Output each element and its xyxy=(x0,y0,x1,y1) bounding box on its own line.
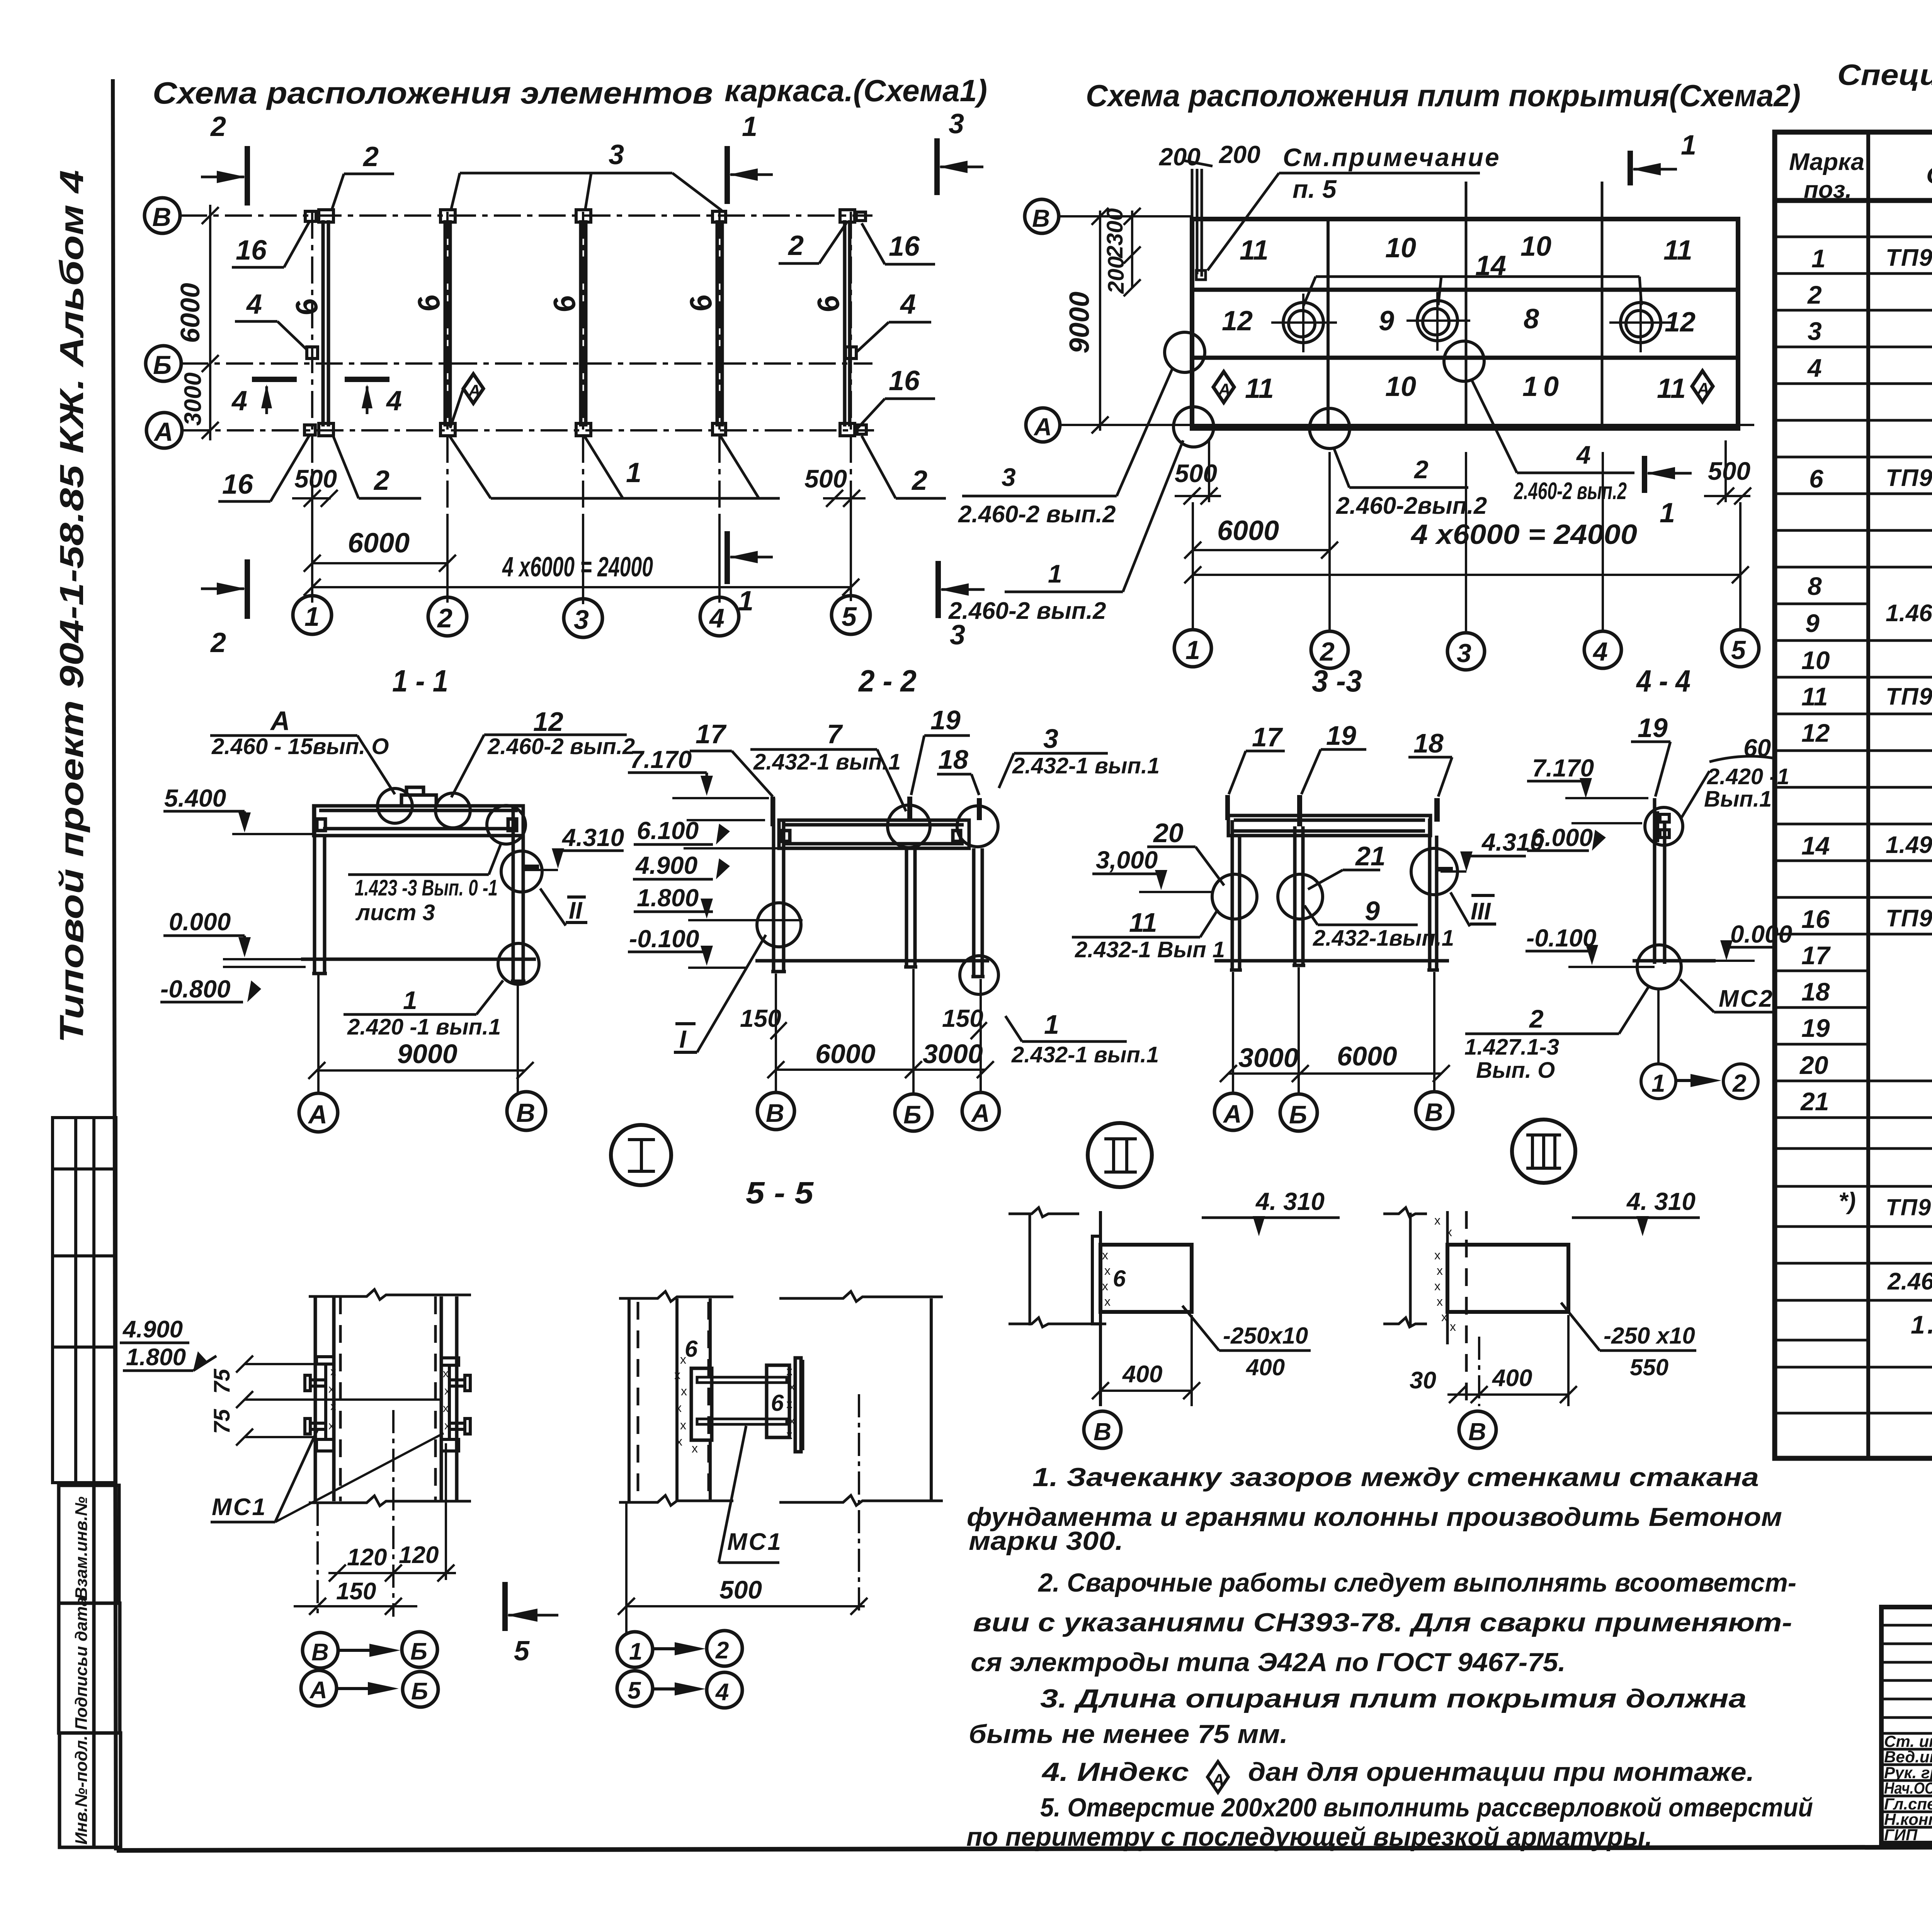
svg-text:1. 400 - 7: 1. 400 - 7 xyxy=(1911,1310,1932,1339)
svg-text:4 - 4: 4 - 4 xyxy=(1636,664,1690,698)
svg-text:0.000: 0.000 xyxy=(169,908,231,936)
svg-text:19: 19 xyxy=(1638,713,1668,743)
svg-text:Спецификация к схеме располож: Спецификация к схеме расположения элемен… xyxy=(1837,59,1932,92)
svg-text:1: 1 xyxy=(1048,559,1062,588)
svg-text:150: 150 xyxy=(336,1578,376,1605)
svg-text:2: 2 xyxy=(787,230,804,261)
svg-text:4. Индекс: 4. Индекс xyxy=(1041,1757,1189,1787)
svg-text:3000: 3000 xyxy=(1238,1043,1299,1073)
svg-text:200: 200 xyxy=(1219,141,1260,168)
svg-text:-250х10: -250х10 xyxy=(1223,1323,1308,1349)
svg-text:200: 200 xyxy=(1159,143,1201,171)
svg-text:-0.100: -0.100 xyxy=(629,925,699,953)
svg-text:I: I xyxy=(679,1025,687,1053)
svg-text:А: А xyxy=(1212,1770,1225,1789)
svg-text:18: 18 xyxy=(1413,728,1444,758)
svg-text:ТП904-1- -КЖИ-200: ТП904-1- -КЖИ-200 xyxy=(1886,245,1932,271)
svg-text:х: х xyxy=(1434,1213,1440,1227)
svg-text:2: 2 xyxy=(210,111,226,142)
svg-text:2: 2 xyxy=(1529,1004,1544,1033)
svg-text:4. 310: 4. 310 xyxy=(1626,1188,1696,1215)
svg-text:А: А xyxy=(1697,379,1709,398)
svg-text:А: А xyxy=(1033,413,1052,441)
svg-text:400: 400 xyxy=(1246,1354,1285,1380)
svg-text:17: 17 xyxy=(1801,941,1831,970)
svg-text:75: 75 xyxy=(209,1409,235,1434)
svg-text:А: А xyxy=(309,1677,327,1704)
svg-text:См.примечание: См.примечание xyxy=(1283,143,1501,172)
svg-text:5: 5 xyxy=(628,1677,641,1704)
svg-text:лист 3: лист 3 xyxy=(355,900,435,925)
svg-text:Вед.инж.: Вед.инж. xyxy=(1884,1748,1932,1766)
svg-text:1.423 -3 Вып. 0 -1: 1.423 -3 Вып. 0 -1 xyxy=(355,875,498,900)
svg-text:2: 2 xyxy=(210,627,226,658)
svg-text:3000: 3000 xyxy=(923,1039,983,1069)
svg-text:2. Сварочные работы следует: 2. Сварочные работы следует выполнять вс… xyxy=(1037,1568,1796,1597)
svg-text:ГИП: ГИП xyxy=(1884,1826,1918,1844)
svg-text:10: 10 xyxy=(1385,233,1416,263)
svg-text:х: х xyxy=(443,1367,449,1380)
svg-text:20: 20 xyxy=(1799,1051,1828,1079)
svg-text:9: 9 xyxy=(1379,306,1394,336)
svg-text:2.460-2вып.2: 2.460-2вып.2 xyxy=(1336,493,1487,519)
svg-text:Взам.инв.№: Взам.инв.№ xyxy=(72,1497,91,1599)
svg-text:5: 5 xyxy=(842,601,857,632)
svg-text:-250 х10: -250 х10 xyxy=(1604,1323,1695,1349)
svg-text:3000: 3000 xyxy=(180,372,206,426)
svg-text:каркаса.(Схема1): каркаса.(Схема1) xyxy=(724,73,987,108)
svg-text:4 х6000 = 24000: 4 х6000 = 24000 xyxy=(502,552,653,583)
svg-text:х: х xyxy=(1434,1248,1440,1262)
svg-text:-0.800: -0.800 xyxy=(160,975,230,1003)
svg-text:75: 75 xyxy=(209,1369,235,1394)
svg-text:В: В xyxy=(766,1099,784,1127)
svg-text:2.420 -1: 2.420 -1 xyxy=(1707,764,1789,789)
svg-text:500: 500 xyxy=(804,464,847,493)
svg-text:5: 5 xyxy=(1731,635,1746,665)
svg-text:3: 3 xyxy=(574,605,589,635)
svg-text:Б: Б xyxy=(1289,1100,1307,1129)
svg-text:550: 550 xyxy=(1630,1354,1668,1380)
svg-text:А: А xyxy=(270,706,290,736)
svg-text:21: 21 xyxy=(1800,1087,1829,1116)
svg-text:6: 6 xyxy=(685,1336,698,1362)
svg-text:х: х xyxy=(1450,1320,1456,1334)
svg-text:9: 9 xyxy=(1365,896,1380,926)
svg-text:ТП904-1- -КЖИ-МС2: ТП904-1- -КЖИ-МС2 xyxy=(1886,1194,1932,1220)
svg-text:1.427.1-3: 1.427.1-3 xyxy=(1464,1035,1559,1060)
svg-text:1: 1 xyxy=(742,111,757,142)
svg-text:2300: 2300 xyxy=(1102,208,1128,258)
svg-text:6: 6 xyxy=(771,1390,784,1416)
svg-text:11: 11 xyxy=(1657,373,1686,404)
svg-text:16: 16 xyxy=(1801,905,1830,933)
svg-text:2: 2 xyxy=(373,465,389,496)
svg-text:17: 17 xyxy=(696,719,727,749)
svg-text:19: 19 xyxy=(1801,1014,1830,1042)
svg-text:2.460-2 вып.2: 2.460-2 вып.2 xyxy=(1514,478,1627,505)
svg-text:МС2: МС2 xyxy=(1719,985,1774,1012)
svg-text:2 - 2: 2 - 2 xyxy=(858,664,917,698)
svg-text:3: 3 xyxy=(1808,317,1822,345)
svg-text:4: 4 xyxy=(386,386,402,416)
svg-text:4.900: 4.900 xyxy=(635,851,697,879)
svg-text:500: 500 xyxy=(1708,457,1750,485)
svg-text:х: х xyxy=(786,1397,793,1411)
svg-text:2: 2 xyxy=(1413,455,1429,484)
svg-text:х: х xyxy=(328,1383,334,1395)
svg-text:120: 120 xyxy=(347,1544,387,1571)
svg-text:2: 2 xyxy=(1732,1069,1747,1097)
svg-text:А: А xyxy=(308,1100,327,1129)
svg-text:х: х xyxy=(1102,1248,1108,1262)
svg-text:В: В xyxy=(516,1098,535,1128)
svg-text:ТП904-1- -КЖИ -100: ТП904-1- -КЖИ -100 xyxy=(1886,465,1932,491)
svg-text:1: 1 xyxy=(1185,635,1200,665)
svg-text:4: 4 xyxy=(231,386,247,416)
svg-text:2.460-2 вып.2: 2.460-2 вып.2 xyxy=(958,501,1116,528)
svg-text:16: 16 xyxy=(889,231,920,262)
svg-text:А: А xyxy=(971,1099,990,1127)
svg-text:3: 3 xyxy=(609,139,624,170)
svg-text:х: х xyxy=(674,1368,680,1382)
svg-text:4: 4 xyxy=(709,603,724,633)
svg-text:МС1: МС1 xyxy=(212,1494,267,1521)
svg-text:12: 12 xyxy=(1222,306,1253,336)
svg-text:2.460-2 вып.2: 2.460-2 вып.2 xyxy=(948,598,1106,624)
svg-text:6000: 6000 xyxy=(175,283,205,343)
svg-text:х: х xyxy=(1441,1310,1447,1324)
svg-text:3: 3 xyxy=(949,109,964,139)
svg-text:7.170: 7.170 xyxy=(630,746,692,773)
svg-text:30: 30 xyxy=(1410,1367,1436,1394)
svg-text:17: 17 xyxy=(1252,722,1283,752)
svg-text:А: А xyxy=(1223,1099,1242,1128)
svg-text:4: 4 xyxy=(246,289,262,320)
svg-text:III: III xyxy=(1471,898,1491,925)
svg-text:19: 19 xyxy=(1326,720,1356,751)
svg-text:3: 3 xyxy=(1043,724,1058,754)
svg-text:12: 12 xyxy=(1801,719,1830,747)
svg-text:Вып. О: Вып. О xyxy=(1476,1058,1555,1083)
svg-text:МС1: МС1 xyxy=(727,1529,782,1555)
svg-text:1.465.1- 10/82 вып.1: 1.465.1- 10/82 вып.1 xyxy=(1886,600,1932,627)
svg-text:1: 1 xyxy=(1811,244,1826,273)
svg-text:3: 3 xyxy=(1457,639,1471,668)
svg-text:п. 5: п. 5 xyxy=(1293,175,1337,203)
svg-text:по периметру с последующей: по периметру с последующей вырезкой арма… xyxy=(966,1822,1652,1852)
svg-text:16: 16 xyxy=(222,469,253,500)
svg-text:9000: 9000 xyxy=(1064,292,1095,353)
svg-text:Б: Б xyxy=(411,1678,428,1705)
svg-text:7.170: 7.170 xyxy=(1532,754,1594,782)
svg-text:2: 2 xyxy=(715,1637,729,1664)
svg-text:8: 8 xyxy=(1808,572,1822,600)
svg-text:х: х xyxy=(786,1364,793,1378)
svg-text:11: 11 xyxy=(1801,682,1828,711)
svg-text:х: х xyxy=(786,1428,793,1442)
svg-text:быть не менее 75 мм.: быть не менее 75 мм. xyxy=(969,1719,1288,1749)
svg-text:6000: 6000 xyxy=(1337,1041,1397,1071)
svg-text:6: 6 xyxy=(1809,464,1824,493)
svg-text:21: 21 xyxy=(1355,841,1386,871)
svg-text:х: х xyxy=(1434,1279,1440,1293)
svg-text:3: 3 xyxy=(950,620,965,651)
svg-text:х: х xyxy=(444,1419,450,1432)
svg-text:9000: 9000 xyxy=(397,1039,457,1069)
svg-text:4: 4 xyxy=(1576,440,1591,469)
svg-text:12: 12 xyxy=(533,707,563,737)
svg-text:500: 500 xyxy=(1175,459,1217,488)
svg-text:10: 10 xyxy=(1801,646,1830,674)
svg-text:2: 2 xyxy=(911,465,927,496)
svg-text:х: х xyxy=(1102,1279,1108,1293)
svg-text:3,000: 3,000 xyxy=(1096,846,1158,874)
svg-text:4.310: 4.310 xyxy=(561,824,624,851)
svg-text:120: 120 xyxy=(399,1542,439,1568)
svg-text:2: 2 xyxy=(437,603,452,633)
svg-text:20: 20 xyxy=(1153,818,1184,848)
svg-text:*): *) xyxy=(1838,1188,1856,1215)
svg-text:10: 10 xyxy=(1385,371,1416,402)
svg-text:2.432-1 вып.1: 2.432-1 вып.1 xyxy=(1011,1042,1159,1067)
svg-text:В: В xyxy=(152,202,171,232)
svg-text:Б: Б xyxy=(153,350,172,380)
svg-text:18: 18 xyxy=(1801,977,1830,1006)
svg-text:1: 1 xyxy=(626,457,641,488)
svg-text:3: 3 xyxy=(1002,463,1016,491)
svg-text:6: 6 xyxy=(1113,1266,1126,1291)
svg-text:2: 2 xyxy=(1319,637,1335,666)
svg-text:3. Длина опирания плит по: 3. Длина опирания плит покрытия должна xyxy=(1040,1684,1747,1713)
svg-text:Вып.1: Вып.1 xyxy=(1704,787,1772,812)
svg-text:х: х xyxy=(676,1434,682,1448)
svg-text:2.432-1 вып.1: 2.432-1 вып.1 xyxy=(1012,753,1160,778)
svg-text:3 -3: 3 -3 xyxy=(1312,664,1362,698)
svg-text:В: В xyxy=(1468,1418,1486,1446)
svg-text:2.432-1вып.1: 2.432-1вып.1 xyxy=(1313,926,1454,951)
svg-text:Б: Б xyxy=(410,1638,427,1665)
svg-text:16: 16 xyxy=(889,365,920,396)
svg-text:9: 9 xyxy=(1805,609,1820,637)
svg-text:Инв.№-подл.: Инв.№-подл. xyxy=(72,1735,91,1845)
svg-text:вии с указаниями СН393-78.: вии с указаниями СН393-78. Для сварки пр… xyxy=(973,1608,1792,1637)
svg-text:А: А xyxy=(153,417,173,447)
svg-text:10: 10 xyxy=(1520,231,1551,262)
svg-text:х: х xyxy=(328,1419,334,1432)
svg-text:16: 16 xyxy=(236,235,267,266)
svg-text:В: В xyxy=(1425,1098,1443,1126)
svg-text:1: 1 xyxy=(403,986,417,1014)
svg-text:2.460 - 15вып. О: 2.460 - 15вып. О xyxy=(211,734,389,759)
svg-text:2.460-2 вып.2: 2.460-2 вып.2 xyxy=(487,734,635,759)
svg-text:4.900: 4.900 xyxy=(122,1316,183,1343)
svg-text:1.800: 1.800 xyxy=(126,1344,186,1371)
svg-text:4: 4 xyxy=(1592,637,1608,666)
svg-text:х: х xyxy=(680,1418,686,1432)
svg-text:х: х xyxy=(789,1380,795,1393)
svg-text:1: 1 xyxy=(304,601,320,632)
svg-text:18: 18 xyxy=(938,744,968,775)
svg-text:6000: 6000 xyxy=(348,528,410,559)
svg-text:5 - 5: 5 - 5 xyxy=(746,1176,814,1210)
svg-text:6.000: 6.000 xyxy=(1531,824,1593,851)
svg-text:4: 4 xyxy=(715,1679,729,1706)
svg-text:В: В xyxy=(1032,204,1050,232)
svg-text:А: А xyxy=(1218,380,1231,399)
svg-text:11: 11 xyxy=(1663,235,1692,266)
svg-text:14: 14 xyxy=(1801,831,1830,860)
svg-text:ТП904-1- -КЖИ- 300: ТП904-1- -КЖИ- 300 xyxy=(1886,683,1932,710)
svg-text:2.420 -1 вып.1: 2.420 -1 вып.1 xyxy=(347,1014,501,1040)
svg-text:х: х xyxy=(1104,1295,1111,1308)
svg-text:1.800: 1.800 xyxy=(637,884,699,912)
svg-text:х: х xyxy=(1437,1264,1443,1278)
svg-text:400: 400 xyxy=(1492,1365,1532,1391)
svg-text:5: 5 xyxy=(514,1636,530,1667)
svg-text:19: 19 xyxy=(930,705,961,735)
svg-text:В: В xyxy=(1094,1418,1111,1446)
svg-text:1 - 1: 1 - 1 xyxy=(392,664,448,698)
svg-text:4: 4 xyxy=(900,289,916,320)
svg-text:Схема расположения элементов: Схема расположения элементов xyxy=(153,76,713,110)
svg-text:10: 10 xyxy=(1522,371,1564,402)
svg-text:1: 1 xyxy=(1044,1009,1059,1040)
svg-text:1: 1 xyxy=(1681,130,1696,161)
svg-text:1: 1 xyxy=(1651,1069,1665,1097)
svg-text:1: 1 xyxy=(1660,498,1675,528)
svg-text:400: 400 xyxy=(1122,1361,1162,1388)
svg-text:х: х xyxy=(443,1402,449,1415)
svg-text:дан для ориентации при мон: дан для ориентации при монтаже. xyxy=(1248,1757,1754,1787)
svg-text:Типовой проект 904-1-58.85 КЖ.: Типовой проект 904-1-58.85 КЖ. Альбом 4 xyxy=(53,170,90,1043)
svg-text:2: 2 xyxy=(362,141,379,172)
svg-text:х: х xyxy=(789,1414,795,1427)
svg-text:500: 500 xyxy=(294,464,337,493)
svg-text:х: х xyxy=(330,1400,336,1413)
svg-text:Б: Б xyxy=(903,1100,922,1129)
svg-text:4. 310: 4. 310 xyxy=(1255,1188,1325,1215)
svg-text:х: х xyxy=(675,1401,682,1415)
svg-text:х: х xyxy=(444,1385,450,1397)
svg-text:х: х xyxy=(1446,1225,1452,1239)
svg-text:8: 8 xyxy=(1524,304,1539,335)
svg-text:2.460-15 вып. 0: 2.460-15 вып. 0 xyxy=(1887,1268,1932,1295)
svg-text:11: 11 xyxy=(1240,235,1269,266)
svg-text:2.432-1 Вып 1: 2.432-1 Вып 1 xyxy=(1075,937,1225,962)
svg-text:Марка: Марка xyxy=(1789,149,1864,175)
svg-text:1. Зачеканку зазоров между: 1. Зачеканку зазоров между стенками стак… xyxy=(1032,1463,1759,1492)
svg-text:-0.100: -0.100 xyxy=(1526,924,1596,952)
svg-text:2: 2 xyxy=(1807,280,1822,309)
svg-text:5.400: 5.400 xyxy=(164,784,226,812)
svg-text:7: 7 xyxy=(827,719,843,749)
svg-text:11: 11 xyxy=(1129,907,1157,938)
svg-text:поз.: поз. xyxy=(1804,177,1852,203)
svg-text:ТП904-1- -КЖИ-СФ1: ТП904-1- -КЖИ-СФ1 xyxy=(1886,905,1932,932)
svg-text:1: 1 xyxy=(629,1638,642,1665)
svg-text:ся электроды типа Э42А по: ся электроды типа Э42А по ГОСТ 9467-75. xyxy=(971,1648,1566,1677)
svg-text:II: II xyxy=(569,897,583,924)
svg-text:В: В xyxy=(311,1639,329,1666)
svg-text:150: 150 xyxy=(942,1004,983,1032)
svg-text:Подписьи дата: Подписьи дата xyxy=(72,1597,91,1730)
svg-text:6000: 6000 xyxy=(815,1039,876,1069)
svg-text:4: 4 xyxy=(1807,353,1822,382)
svg-text:11: 11 xyxy=(1245,373,1274,404)
svg-text:х: х xyxy=(1104,1264,1111,1278)
svg-text:х: х xyxy=(681,1384,687,1398)
svg-text:5. Отверстие 200х200 выполнит: 5. Отверстие 200х200 выполнить рассверло… xyxy=(1040,1793,1813,1822)
svg-text:Схема расположения плит пок: Схема расположения плит покрытия(Схема2) xyxy=(1086,78,1801,113)
svg-text:х: х xyxy=(692,1441,698,1455)
svg-text:6000: 6000 xyxy=(1217,515,1279,546)
svg-text:0.000: 0.000 xyxy=(1730,920,1792,948)
svg-text:Обозначение: Обозначение xyxy=(1926,162,1932,189)
svg-text:х: х xyxy=(1437,1295,1443,1308)
svg-text:марки 300.: марки 300. xyxy=(969,1526,1123,1556)
svg-text:Нач.ОСП-1: Нач.ОСП-1 xyxy=(1884,1779,1932,1797)
svg-text:А: А xyxy=(468,381,481,400)
svg-text:1.494-24 вып.1: 1.494-24 вып.1 xyxy=(1886,832,1932,858)
svg-text:1: 1 xyxy=(738,586,753,617)
svg-text:500: 500 xyxy=(719,1575,762,1604)
svg-text:х: х xyxy=(330,1365,336,1378)
